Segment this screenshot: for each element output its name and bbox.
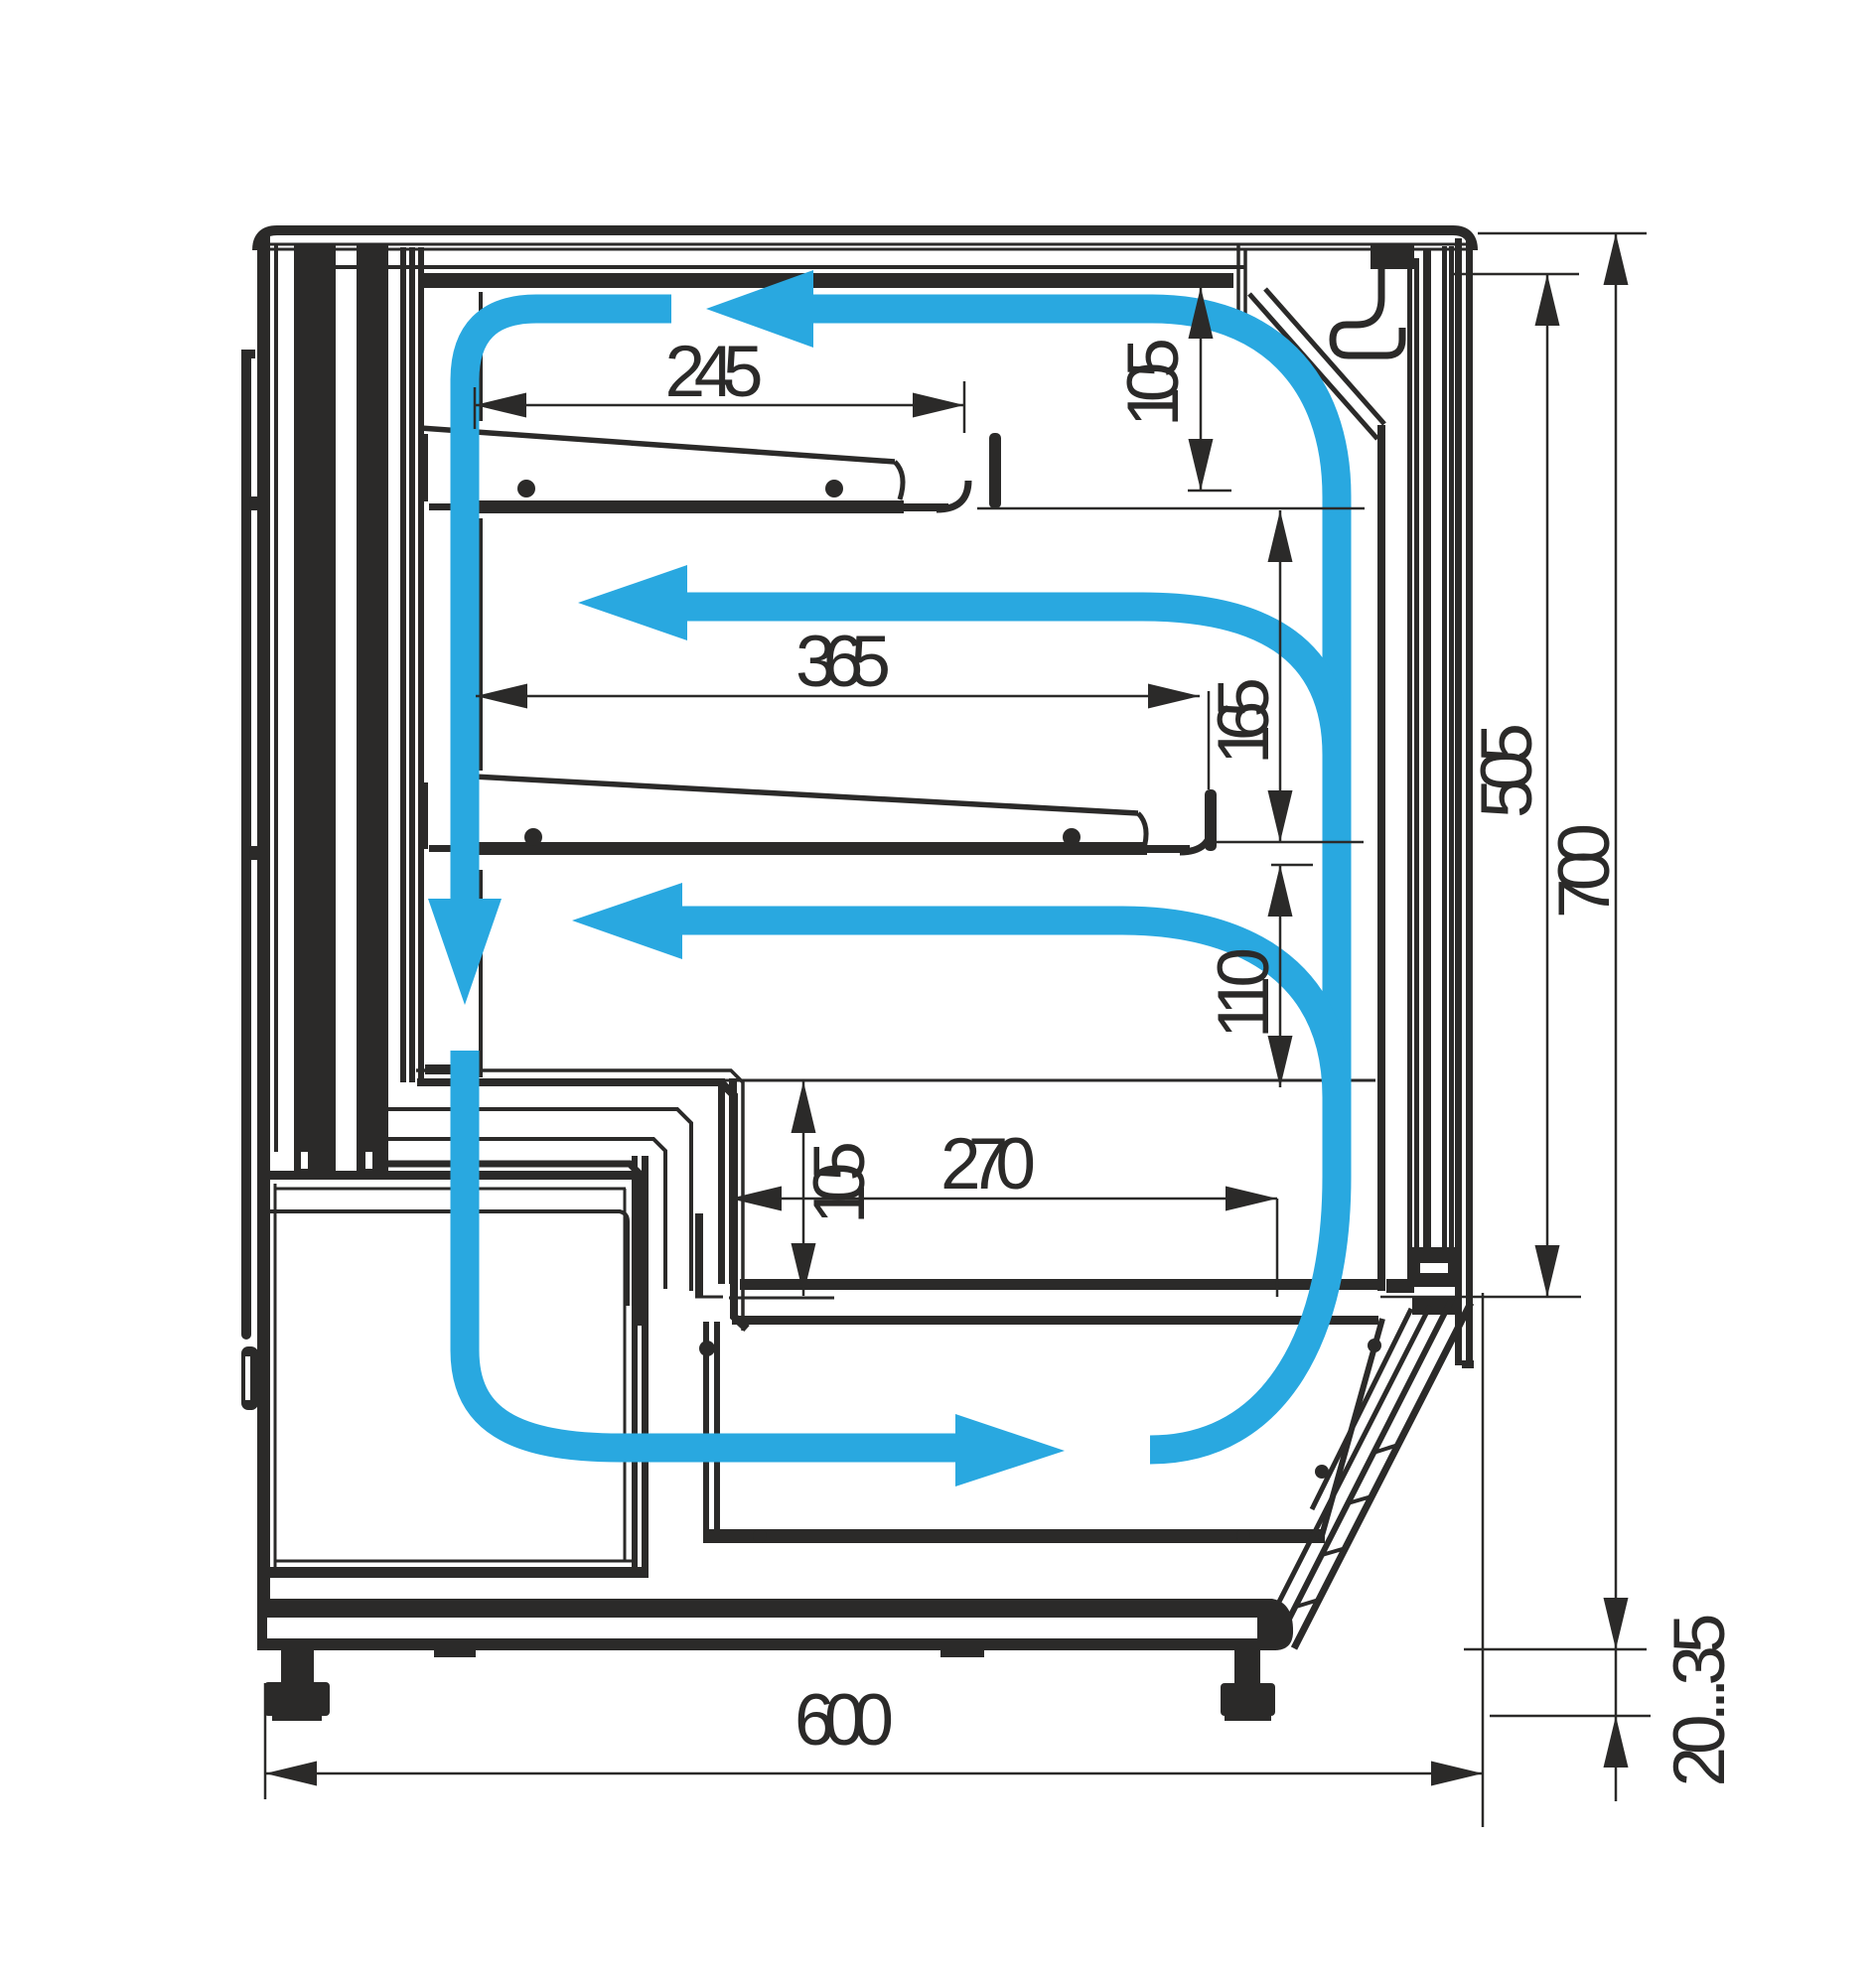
svg-text:270: 270 bbox=[940, 1124, 1036, 1204]
svg-text:700: 700 bbox=[1544, 823, 1625, 919]
svg-text:365: 365 bbox=[795, 622, 891, 702]
svg-text:105: 105 bbox=[1113, 338, 1194, 427]
svg-text:165: 165 bbox=[1204, 677, 1284, 765]
svg-text:20...35: 20...35 bbox=[1660, 1614, 1740, 1787]
svg-text:110: 110 bbox=[1204, 947, 1284, 1039]
svg-text:245: 245 bbox=[665, 332, 764, 412]
svg-text:600: 600 bbox=[794, 1680, 894, 1761]
svg-text:505: 505 bbox=[1467, 723, 1547, 818]
svg-text:105: 105 bbox=[799, 1141, 880, 1224]
